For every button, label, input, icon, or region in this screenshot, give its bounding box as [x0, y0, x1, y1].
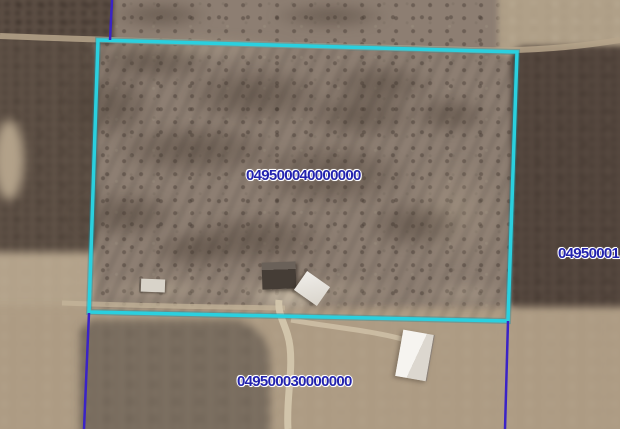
parcel-line-bottom-right: [505, 321, 508, 429]
parcel-id-label-right: 04950001: [558, 245, 619, 262]
map-viewport[interactable]: 049500040000000 049500030000000 04950001: [0, 0, 620, 429]
parcel-line-top: [110, 0, 112, 40]
parcel-id-label-bottom: 049500030000000: [237, 373, 352, 390]
parcel-line-bottom-left: [84, 313, 89, 429]
parcel-id-label-center: 049500040000000: [246, 167, 361, 184]
parcel-boundaries-layer: [0, 0, 620, 429]
